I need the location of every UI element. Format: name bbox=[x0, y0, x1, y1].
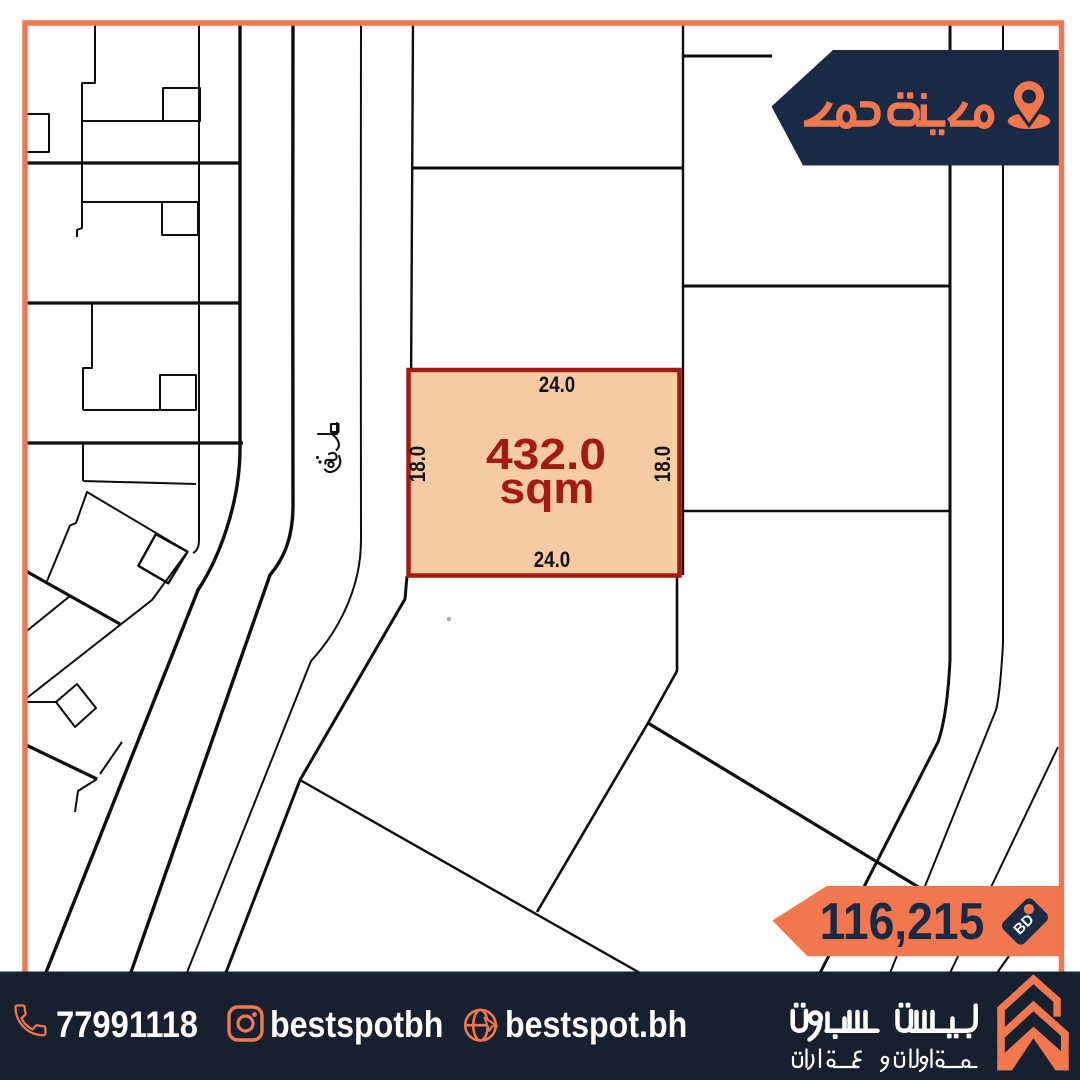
svg-text:24.0: 24.0 bbox=[539, 374, 575, 398]
svg-text:77991118: 77991118 bbox=[56, 1004, 198, 1045]
svg-text:bestspotbh: bestspotbh bbox=[270, 1005, 443, 1046]
svg-text:116,215: 116,215 bbox=[820, 893, 985, 951]
svg-text:18.0: 18.0 bbox=[407, 446, 431, 482]
svg-text:sqm: sqm bbox=[500, 463, 595, 513]
svg-text:18.0: 18.0 bbox=[652, 446, 676, 482]
svg-text:bestspot.bh: bestspot.bh bbox=[505, 1005, 687, 1046]
svg-text:24.0: 24.0 bbox=[534, 549, 570, 573]
